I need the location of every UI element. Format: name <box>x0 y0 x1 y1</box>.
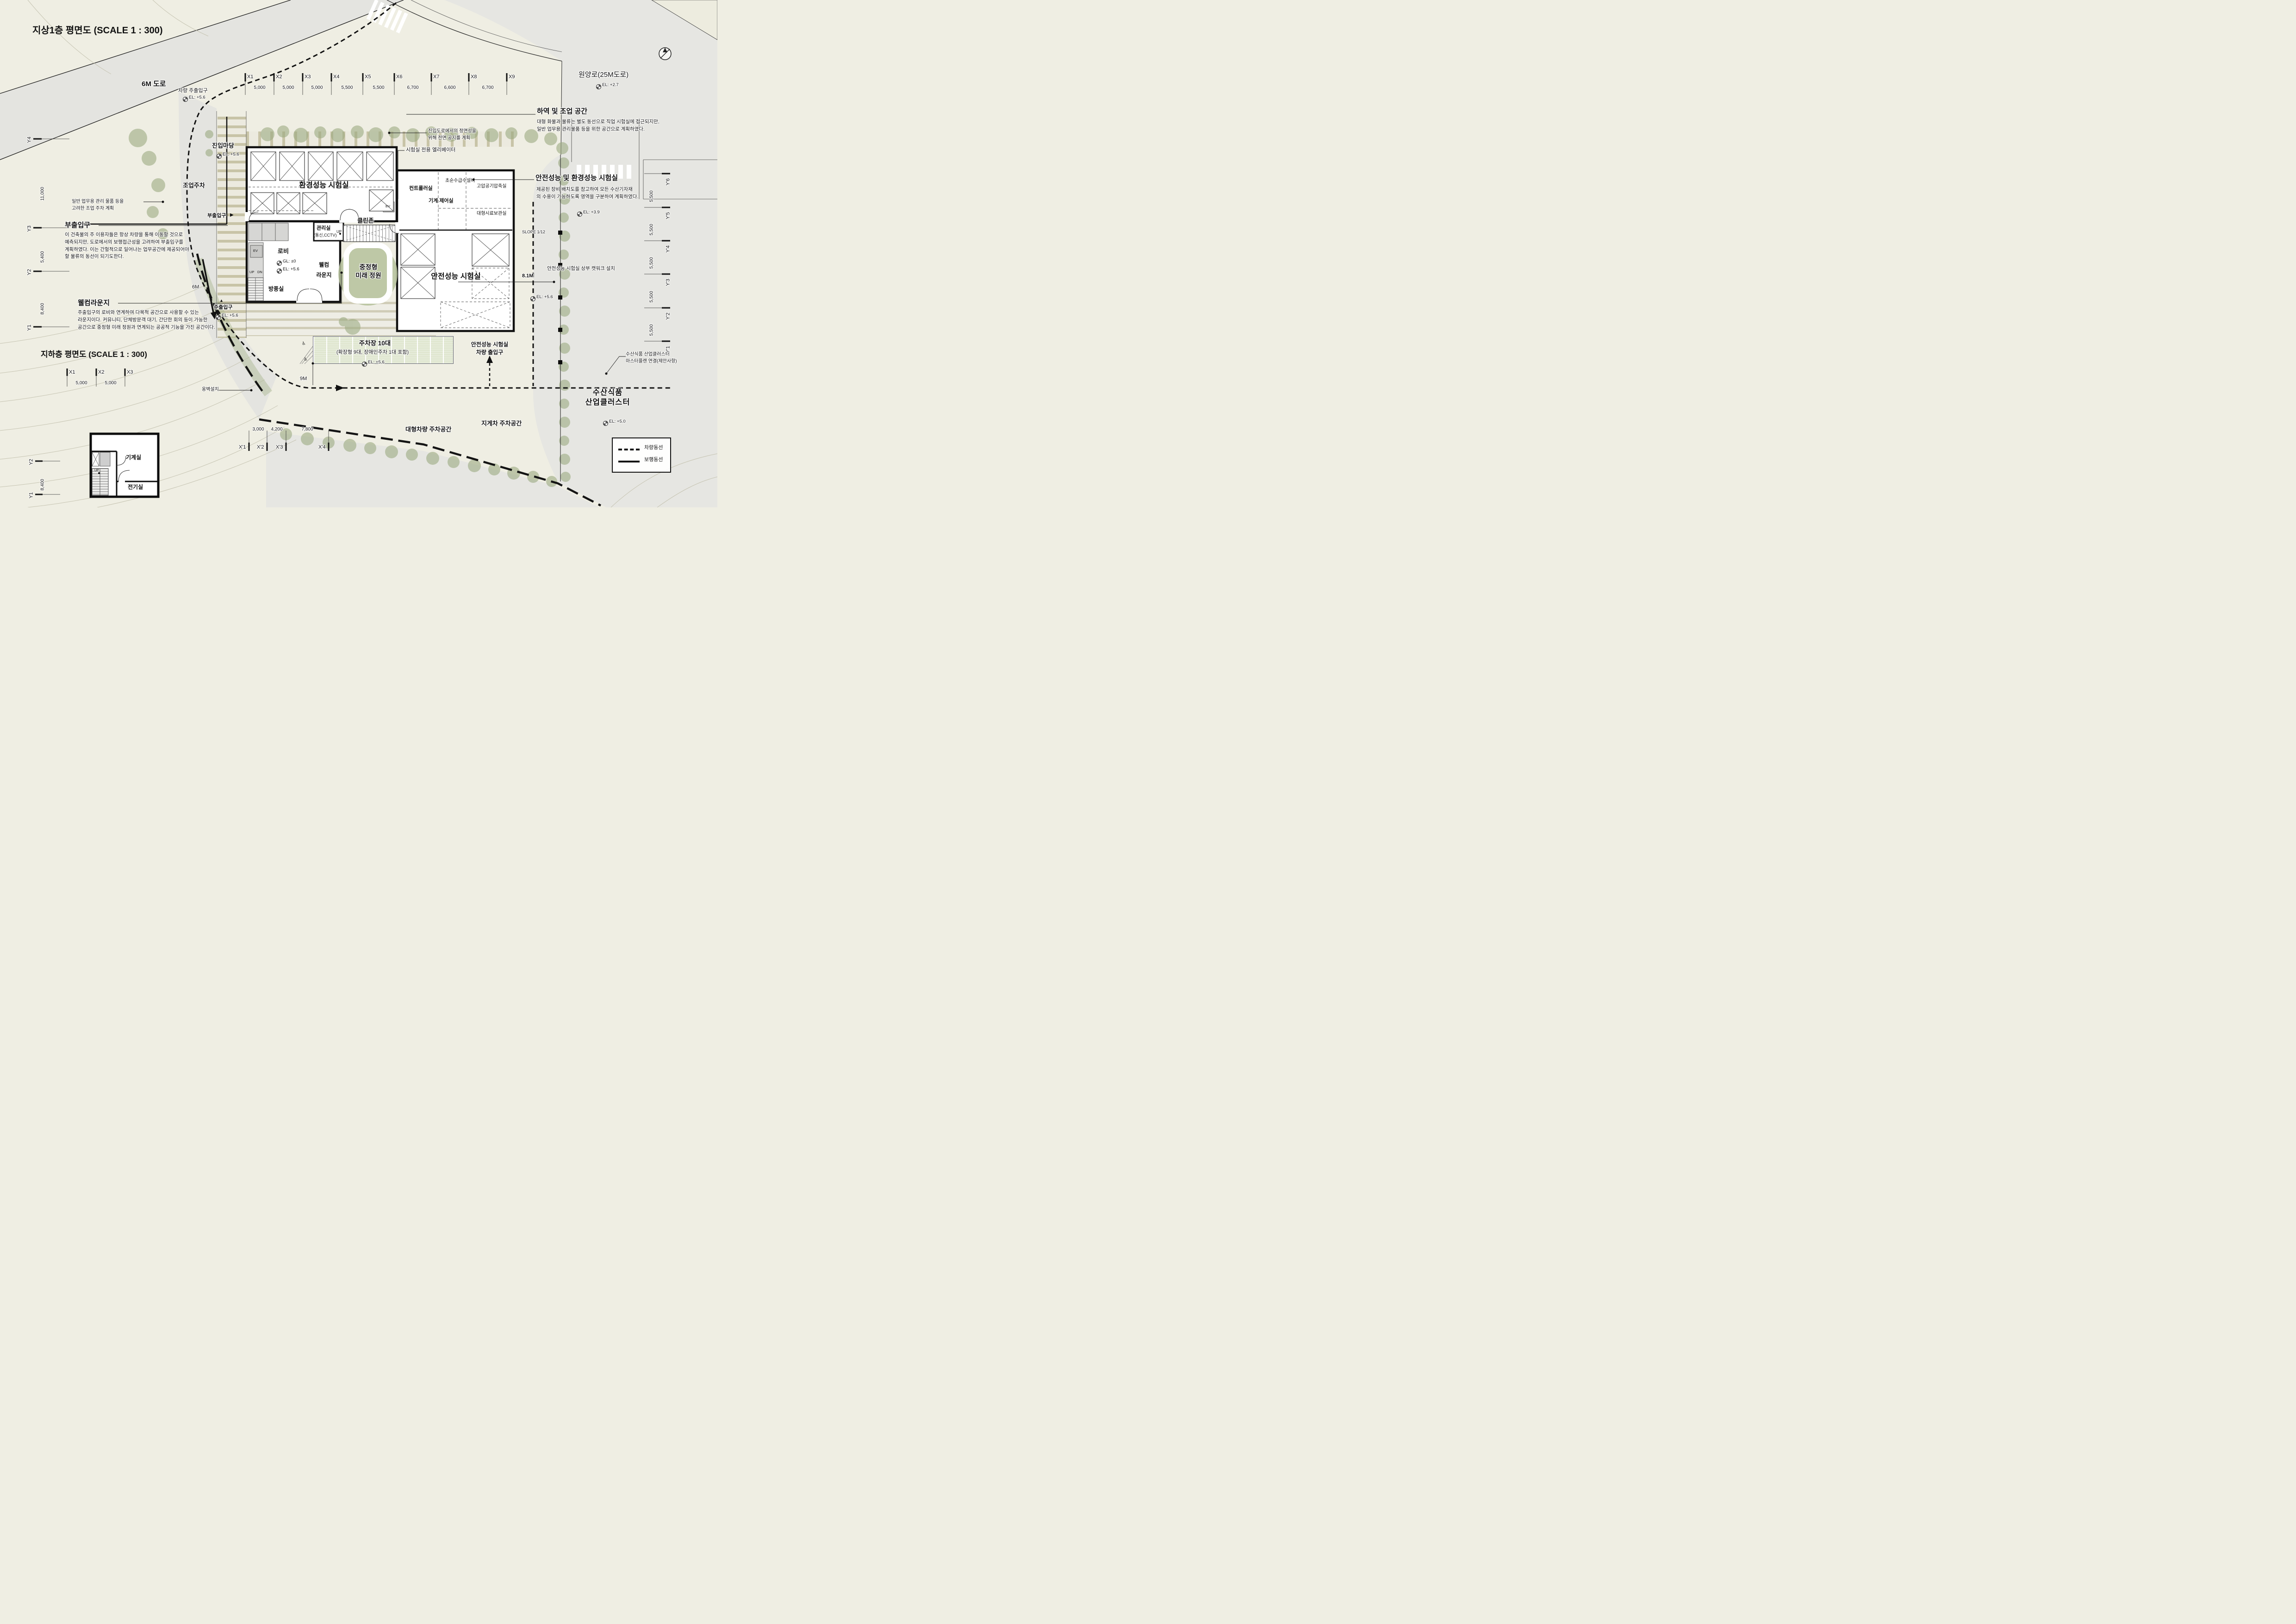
grid-x-dim: 6,700 <box>482 85 493 91</box>
grid-xp1: X'1 <box>239 444 246 450</box>
road-6m-label: 6M 도로 <box>142 80 166 88</box>
bsmt-x-dim: 5,000 <box>105 381 116 386</box>
grid-yr-dim: 5,500 <box>649 291 655 302</box>
parking-title: 주차장 10대 <box>359 340 391 347</box>
grid-yr5: Y'5 <box>665 212 671 219</box>
benchmark-icon <box>183 97 188 102</box>
legend-pedestrian-label: 보행동선 <box>644 457 663 463</box>
grid-x4: X4 <box>333 74 339 80</box>
bsmt-y1: Y1 <box>28 492 34 498</box>
retaining-wall-label: 옹벽설치 <box>202 387 219 393</box>
room-compressor: 고압공기압축실 <box>477 184 506 189</box>
grid-x-dim: 5,000 <box>311 85 323 91</box>
room-windbreak: 방풍실 <box>268 286 284 293</box>
grid-xp-dim: 3,000 <box>252 427 264 432</box>
legend-vehicle-label: 차량동선 <box>644 445 663 451</box>
bsmt-y2: Y2 <box>28 459 34 465</box>
dn-label: DN <box>257 270 262 275</box>
side-entrance-paragraph: 이 건축물의 주 이용자들은 항상 차량을 통해 이동할 것으로 예측되지만, … <box>65 231 189 261</box>
safety-vehicle-entry-label: 안전성능 시험실 차량 출입구 <box>471 341 509 356</box>
grid-yr3: Y'3 <box>665 279 671 286</box>
el-56-right: EL: +5.6 <box>536 295 553 300</box>
benchmark-icon <box>217 154 222 159</box>
benchmark-icon <box>277 261 282 266</box>
courtyard-label: 중정형 미래 정원 <box>355 263 381 280</box>
main-entrance-label: 주출입구 <box>214 305 232 311</box>
grid-y2: Y2 <box>26 269 32 275</box>
stair-lobby <box>248 278 263 301</box>
benchmark-icon <box>577 212 582 217</box>
legend-box: 차량동선 보행동선 <box>612 437 671 473</box>
grid-yr6: Y'6 <box>665 178 671 186</box>
room-ultrapure: 초순수급수설비 <box>445 178 475 184</box>
basement-title: 지하층 평면도 (SCALE 1 : 300) <box>41 350 147 359</box>
basement-plan <box>91 434 158 497</box>
up-label: UP <box>249 270 254 275</box>
grid-x-dim: 6,600 <box>444 85 455 91</box>
room-bsmt-up: UP <box>94 469 99 473</box>
grid-yr2: Y'2 <box>665 312 671 320</box>
benchmark-icon <box>603 421 608 426</box>
dim-8-1m: 8.1M <box>522 273 533 279</box>
side-entrance-heading: 부출입구 <box>65 221 90 229</box>
site-plan-sheet: 지상1층 평면도 (SCALE 1 : 300) 지하층 평면도 (SCALE … <box>0 0 717 507</box>
lobby-el: EL: +5.6 <box>283 267 299 272</box>
grid-y-dim: 8,400 <box>40 303 46 314</box>
welcome-lounge-heading: 웰컴라운지 <box>78 299 110 307</box>
grid-x-dim: 5,500 <box>373 85 384 91</box>
grid-xp3: X'3 <box>276 444 283 450</box>
grid-x1: X1 <box>247 74 253 80</box>
room-office-sub: (통신,CCTV) <box>314 233 337 237</box>
room-welcome-1: 웰컴 <box>319 262 329 269</box>
cluster-masterplan-note: 수산식품 산업클러스터 마스터플랜 연결(제안사항) <box>626 351 677 365</box>
room-welcome-2: 라운지 <box>316 272 331 279</box>
bsmt-y-dim: 8,400 <box>40 479 46 490</box>
grid-x2: X2 <box>276 74 282 80</box>
wonyang-road-label: 원양로(25M도로) <box>579 71 628 79</box>
grid-x-dim: 5,000 <box>254 85 265 91</box>
room-machine: 기계실 <box>126 455 141 461</box>
bsmt-x-dim: 5,000 <box>75 381 87 386</box>
grid-yr-dim: 5,500 <box>649 224 655 235</box>
grid-xp2: X'2 <box>257 444 264 450</box>
parking-el: EL: +5.6 <box>368 360 385 365</box>
bsmt-x3: X3 <box>127 369 133 375</box>
room-cleanzone: 클린존 <box>357 218 374 225</box>
grid-x3: X3 <box>305 74 311 80</box>
wc-rooms <box>249 223 288 241</box>
ev-label-lobby: EV <box>253 249 258 253</box>
wonyang-el: EL: +2.7 <box>602 83 619 88</box>
dim-9m: 9M <box>300 376 307 382</box>
room-controller: 컨트롤러실 <box>409 186 433 192</box>
grid-y4: Y4 <box>26 137 32 143</box>
cluster-title: 수산식품 산업클러스터 <box>585 388 630 408</box>
stair-up-label: UP <box>336 230 342 234</box>
parking-subtitle: (확장형 9대, 장애인주차 1대 포함) <box>336 350 409 356</box>
grid-xp-dim: 4,200 <box>271 427 282 432</box>
large-vehicle-parking-label: 대형차량 주차공간 <box>405 426 451 433</box>
room-sample-storage: 대형시료보관실 <box>477 211 506 217</box>
service-parking-label: 조업주차 <box>183 182 205 189</box>
grid-x8: X8 <box>471 74 477 80</box>
room-lobby: 로비 <box>278 248 289 255</box>
grid-x-dim: 5,000 <box>282 85 294 91</box>
benchmark-icon <box>362 362 367 367</box>
grid-y-dim: 11,000 <box>40 187 46 201</box>
lobby-gl: GL: ±0 <box>283 259 296 264</box>
grid-x-dim: 6,700 <box>407 85 418 91</box>
benchmark-icon <box>530 296 535 301</box>
el-50: EL: +5.0 <box>609 419 626 425</box>
grid-yr-dim: 5,500 <box>649 257 655 269</box>
side-entrance-marker-label: 부출입구 <box>207 213 226 219</box>
grid-y-dim: 5,400 <box>40 251 46 262</box>
accessible-parking-icon: ♿ <box>304 357 308 362</box>
grid-x7: X7 <box>433 74 439 80</box>
north-arrow-icon <box>659 48 671 60</box>
room-electric: 전기실 <box>128 484 143 491</box>
vehicle-entry-label: 차량 주출입구 <box>178 88 208 94</box>
note-lab-elevator: 시험실 전용 엘리베이터 <box>406 147 455 153</box>
grid-xp4: X'4 <box>318 444 326 450</box>
note-service-parking: 일반 업무용 관리 물품 등을 고려한 조업 주차 계획 <box>72 198 124 212</box>
main-entrance-marker-icon: ▲ <box>219 298 224 303</box>
grid-x5: X5 <box>365 74 371 80</box>
main-entrance-el: EL: +5.6 <box>222 313 238 319</box>
slope-label: SLOPE 1/12 <box>522 230 545 234</box>
grid-y3: Y3 <box>26 225 32 231</box>
grid-yr4: Y'4 <box>665 245 671 253</box>
grid-yr-dim: 5,500 <box>649 324 655 336</box>
grid-x6: X6 <box>396 74 402 80</box>
bsmt-x1: X1 <box>69 369 75 375</box>
side-entrance-arrow-icon: ▶ <box>230 212 234 218</box>
bsmt-x2: X2 <box>98 369 104 375</box>
catwalk-note: 안전성능 시험실 상부 캣워크 설치 <box>547 266 615 271</box>
page-title: 지상1층 평면도 (SCALE 1 : 300) <box>32 25 163 36</box>
safety-env-paragraph: 제공된 장비 배치도를 참고하여 모든 수산기자재 의 수용이 가능하도록 영역… <box>536 186 638 201</box>
note-front-setback: 진입도로에서의 정면성을 위해 전면 공지를 계획 <box>428 128 476 142</box>
grid-xp-dim: 7,800 <box>301 427 313 432</box>
room-env-lab: 환경성능 시험실 <box>299 181 349 190</box>
legend-vehicle-line <box>618 449 640 450</box>
grid-yr-dim: 5,500 <box>649 190 655 202</box>
el-39: EL: +3.9 <box>583 210 600 215</box>
grid-y1: Y1 <box>26 325 32 331</box>
safety-env-heading: 안전성능 및 환경성능 시험실 <box>535 174 618 182</box>
room-safety-lab: 안전성능 시험실 <box>431 273 481 281</box>
ev-label-lab: EV <box>386 205 390 209</box>
loading-area-paragraph: 대형 화물과 물류는 별도 동선으로 직업 시험실에 접근되지만, 일반 업무용… <box>537 119 660 133</box>
room-machine-control: 기계 제어실 <box>429 198 454 204</box>
loading-area-heading: 하역 및 조업 공간 <box>537 107 587 115</box>
accessible-parking-icon: ♿ <box>302 341 306 347</box>
forklift-parking-label: 지게차 주차공간 <box>481 420 522 427</box>
legend-pedestrian-line <box>618 461 640 462</box>
grid-x9: X9 <box>509 74 515 80</box>
welcome-lounge-paragraph: 주출입구의 로비와 연계하여 다목적 공간으로 사용할 수 있는 라운지이다. … <box>78 309 215 331</box>
dim-6m: 6M <box>192 284 199 290</box>
vehicle-entry-el: EL: +5.6 <box>189 95 205 100</box>
benchmark-icon <box>216 315 221 320</box>
entry-court-el: EL: +5.6 <box>223 152 239 157</box>
entry-court-label: 진입마당 <box>212 143 234 150</box>
grid-x-dim: 5,500 <box>341 85 353 91</box>
benchmark-icon <box>277 269 282 274</box>
benchmark-icon <box>596 84 601 89</box>
room-office: 관리실 <box>317 225 330 231</box>
